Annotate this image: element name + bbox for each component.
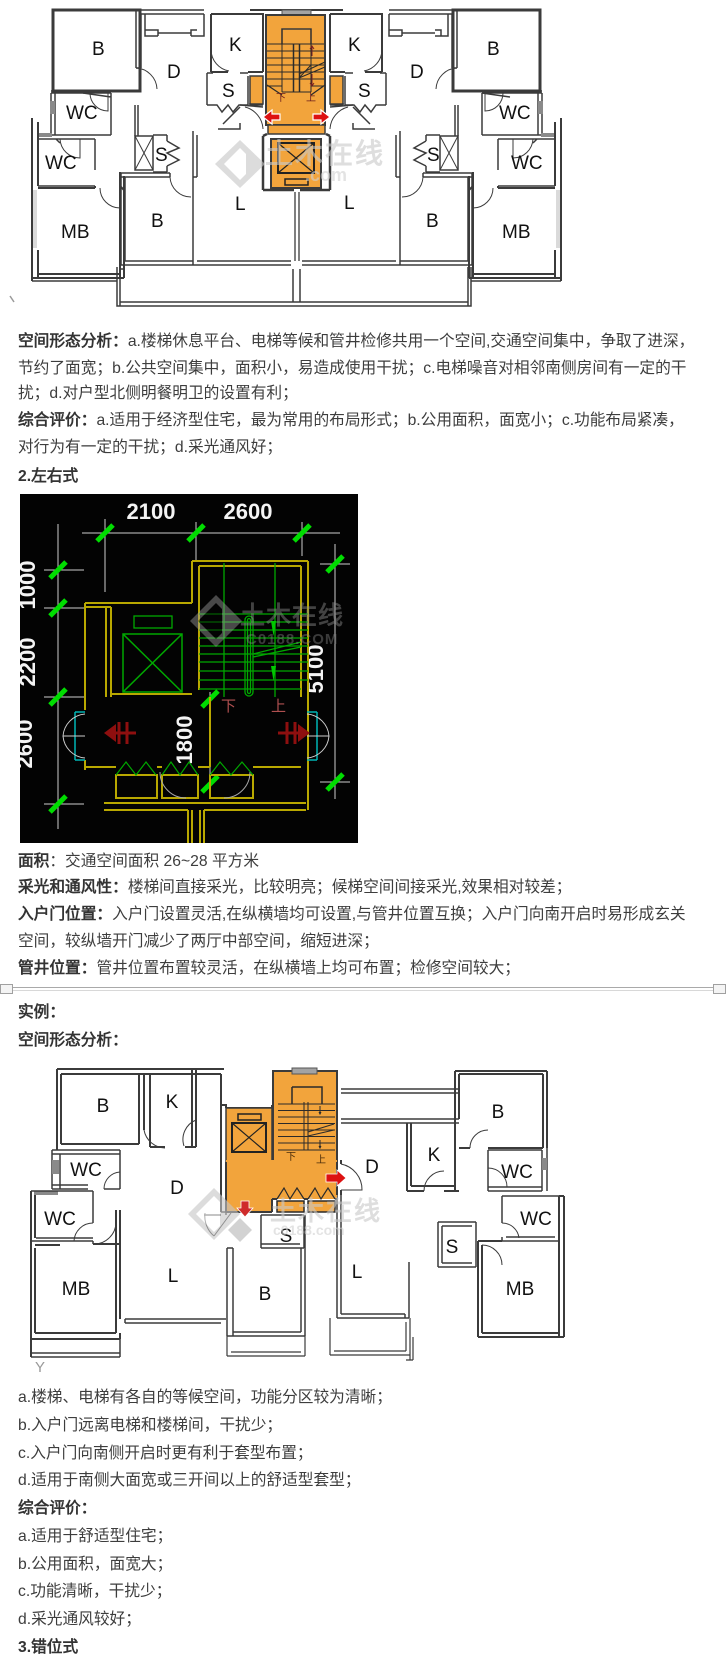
svg-text:S: S: [155, 145, 168, 166]
svg-text:L: L: [344, 193, 355, 214]
svg-text:上: 上: [306, 92, 316, 104]
svg-text:S: S: [222, 81, 235, 102]
svg-text:下: 下: [221, 698, 236, 715]
svg-text:5100: 5100: [303, 645, 328, 694]
svg-text:S: S: [427, 145, 440, 166]
svg-text:B: B: [92, 39, 105, 60]
svg-text:B: B: [259, 1284, 272, 1305]
svg-text:WC: WC: [499, 103, 531, 124]
svg-text:B: B: [151, 211, 164, 232]
svg-text:K: K: [166, 1092, 179, 1113]
svg-text:D: D: [170, 1178, 184, 1199]
svg-text:K: K: [428, 1145, 441, 1166]
svg-text:B: B: [492, 1102, 505, 1123]
svg-text:B: B: [487, 39, 500, 60]
svg-text:WC: WC: [70, 1160, 102, 1181]
svg-text:L: L: [168, 1266, 179, 1287]
svg-text:WC: WC: [44, 1209, 76, 1230]
svg-text:L: L: [235, 194, 246, 215]
svg-text:WC: WC: [66, 103, 98, 124]
svg-text:2200: 2200: [20, 638, 40, 687]
svg-text:下: 下: [276, 93, 286, 104]
svg-text:K: K: [229, 35, 242, 56]
svg-text:上: 上: [316, 1154, 326, 1166]
svg-text:.com: .com: [305, 165, 347, 185]
svg-text:上: 上: [271, 698, 286, 715]
svg-text:S: S: [358, 81, 371, 102]
svg-text:1800: 1800: [172, 716, 197, 765]
svg-text:MB: MB: [62, 1279, 91, 1300]
svg-text:MB: MB: [61, 222, 90, 243]
svg-text:下: 下: [286, 1152, 296, 1163]
svg-text:WC: WC: [511, 153, 543, 174]
svg-text:2600: 2600: [20, 720, 37, 769]
svg-text:c0188.com: c0188.com: [273, 1222, 345, 1238]
svg-text:D: D: [410, 62, 424, 83]
svg-text:WC: WC: [520, 1209, 552, 1230]
svg-text:2600: 2600: [224, 499, 273, 524]
svg-text:2100: 2100: [127, 499, 176, 524]
svg-text:MB: MB: [506, 1279, 535, 1300]
svg-text:MB: MB: [502, 222, 531, 243]
svg-text:S: S: [446, 1237, 459, 1258]
svg-text:L: L: [352, 1262, 363, 1283]
svg-text:WC: WC: [501, 1162, 533, 1183]
svg-text:C0188.COM: C0188.COM: [246, 631, 338, 648]
svg-text:D: D: [167, 62, 181, 83]
svg-text:WC: WC: [45, 153, 77, 174]
svg-text:1000: 1000: [20, 561, 40, 610]
svg-text:D: D: [365, 1157, 379, 1178]
svg-text:B: B: [426, 211, 439, 232]
svg-text:B: B: [97, 1096, 110, 1117]
svg-text:土木在线: 土木在线: [240, 601, 344, 630]
svg-text:K: K: [348, 35, 361, 56]
